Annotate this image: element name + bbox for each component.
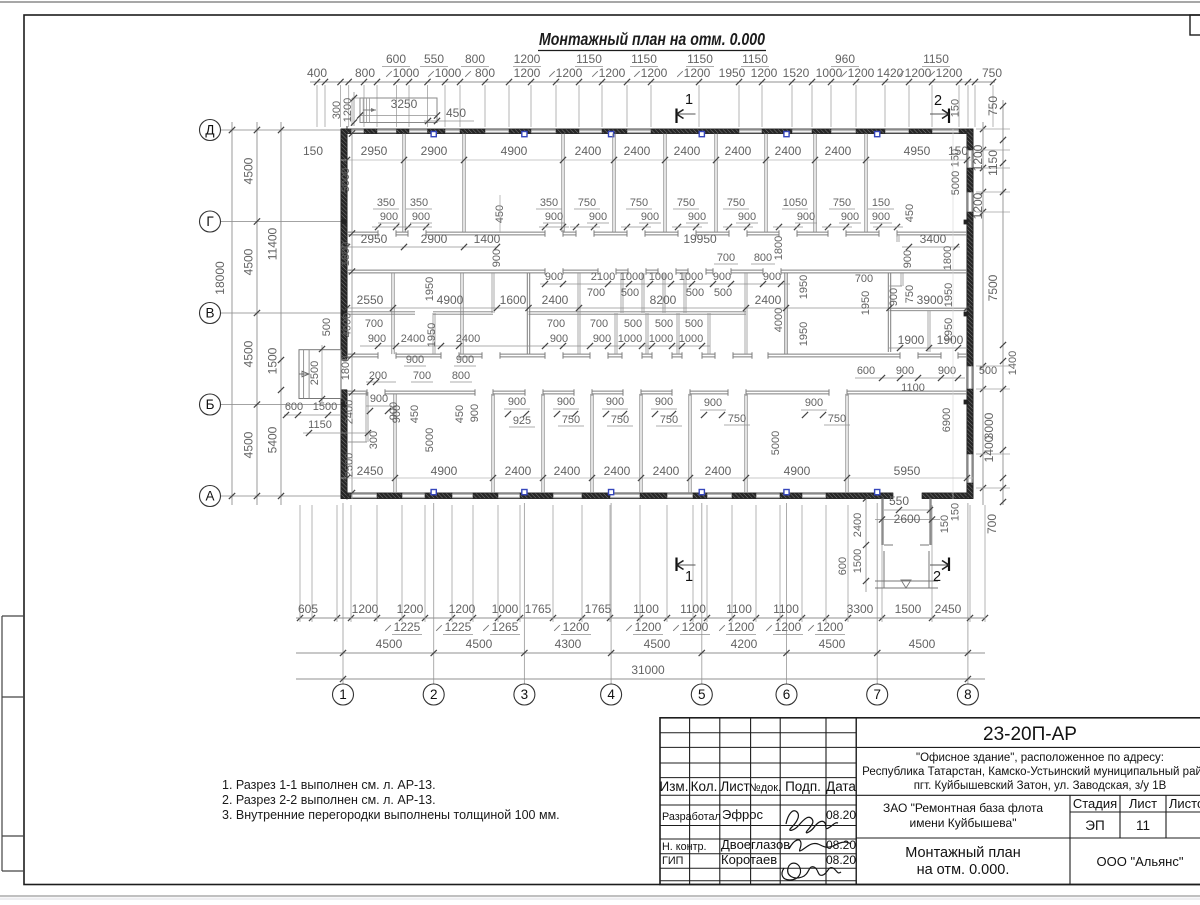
- svg-text:1000: 1000: [435, 66, 462, 80]
- svg-text:750: 750: [828, 413, 846, 425]
- svg-text:900: 900: [896, 365, 914, 377]
- svg-text:08.20: 08.20: [826, 853, 856, 867]
- svg-text:1150: 1150: [576, 52, 602, 66]
- svg-text:1: 1: [685, 569, 693, 585]
- svg-text:1200: 1200: [352, 602, 379, 616]
- svg-text:2900: 2900: [421, 144, 448, 158]
- svg-text:900: 900: [641, 211, 659, 223]
- svg-text:1000: 1000: [649, 333, 673, 345]
- svg-text:925: 925: [513, 415, 531, 427]
- svg-text:Стадия: Стадия: [1073, 796, 1117, 811]
- svg-text:1200: 1200: [449, 602, 476, 616]
- svg-text:Подп.: Подп.: [785, 779, 821, 794]
- svg-text:700: 700: [855, 273, 873, 285]
- svg-text:2950: 2950: [361, 232, 388, 246]
- svg-text:Разработал: Разработал: [662, 811, 721, 823]
- svg-text:350: 350: [540, 197, 558, 209]
- svg-text:1950: 1950: [424, 277, 436, 301]
- svg-text:2: 2: [934, 93, 942, 109]
- svg-text:900: 900: [469, 404, 481, 422]
- svg-text:4900: 4900: [784, 464, 811, 478]
- svg-text:Монтажный план на отм. 0.000: Монтажный план на отм. 0.000: [539, 29, 765, 49]
- svg-text:1200: 1200: [342, 98, 354, 122]
- svg-text:Н. контр.: Н. контр.: [662, 841, 707, 853]
- svg-text:Дата: Дата: [826, 779, 856, 794]
- svg-text:Д: Д: [205, 123, 214, 138]
- svg-text:150: 150: [939, 515, 951, 533]
- svg-text:800: 800: [355, 66, 375, 80]
- svg-text:700: 700: [587, 287, 605, 299]
- svg-text:2400: 2400: [575, 144, 602, 158]
- svg-text:2400: 2400: [775, 144, 802, 158]
- svg-text:2: 2: [933, 569, 941, 585]
- svg-text:750: 750: [727, 197, 745, 209]
- svg-text:ООО "Альянс": ООО "Альянс": [1097, 854, 1184, 869]
- svg-text:1000: 1000: [679, 271, 703, 283]
- svg-text:1200: 1200: [936, 66, 963, 80]
- svg-text:4900: 4900: [437, 293, 464, 307]
- svg-text:08.20: 08.20: [826, 808, 856, 822]
- svg-text:ГИП: ГИП: [662, 855, 683, 867]
- svg-text:900: 900: [557, 396, 575, 408]
- svg-text:4950: 4950: [904, 144, 931, 158]
- svg-text:500: 500: [686, 287, 704, 299]
- svg-text:900: 900: [797, 211, 815, 223]
- svg-text:1050: 1050: [783, 197, 807, 209]
- svg-text:3: 3: [521, 687, 529, 702]
- svg-text:ЗАО "Ремонтная база флота: ЗАО "Ремонтная база флота: [883, 801, 1043, 815]
- svg-text:1150: 1150: [631, 52, 657, 66]
- svg-text:5000: 5000: [950, 171, 962, 195]
- svg-text:800: 800: [475, 66, 495, 80]
- svg-text:4500: 4500: [644, 637, 671, 651]
- svg-text:500: 500: [714, 287, 732, 299]
- svg-text:Лист: Лист: [1129, 796, 1157, 811]
- svg-text:900: 900: [593, 333, 611, 345]
- svg-text:4500: 4500: [376, 637, 403, 651]
- svg-text:1200: 1200: [817, 620, 844, 634]
- svg-text:2: 2: [430, 687, 438, 702]
- svg-text:450: 450: [446, 106, 466, 120]
- svg-text:150: 150: [950, 99, 962, 117]
- svg-text:900: 900: [655, 396, 673, 408]
- svg-text:Листов: Листов: [1169, 796, 1200, 811]
- svg-text:2400: 2400: [653, 464, 680, 478]
- svg-text:5: 5: [698, 687, 706, 702]
- svg-text:1000: 1000: [816, 66, 843, 80]
- svg-text:900: 900: [370, 393, 388, 405]
- svg-text:4500: 4500: [242, 340, 256, 367]
- svg-text:3250: 3250: [391, 97, 418, 111]
- svg-text:4500: 4500: [819, 637, 846, 651]
- svg-text:500: 500: [685, 318, 703, 330]
- svg-text:1765: 1765: [585, 602, 612, 616]
- svg-text:2400: 2400: [725, 144, 752, 158]
- svg-text:900: 900: [688, 211, 706, 223]
- svg-text:500: 500: [621, 287, 639, 299]
- svg-text:1000: 1000: [492, 602, 519, 616]
- svg-text:1800: 1800: [942, 246, 954, 270]
- svg-text:900: 900: [738, 211, 756, 223]
- svg-text:150: 150: [948, 144, 968, 158]
- svg-text:2600: 2600: [894, 512, 921, 526]
- svg-text:1800: 1800: [340, 356, 352, 380]
- svg-text:1520: 1520: [783, 66, 810, 80]
- svg-text:3900: 3900: [917, 293, 944, 307]
- svg-text:Двоеглазов: Двоеглазов: [721, 837, 790, 852]
- svg-text:1900: 1900: [937, 333, 964, 347]
- svg-text:750: 750: [660, 414, 678, 426]
- svg-text:18000: 18000: [213, 261, 227, 295]
- svg-text:Лист: Лист: [720, 779, 749, 794]
- svg-text:600: 600: [386, 52, 406, 66]
- svg-text:1150: 1150: [986, 150, 1000, 176]
- svg-text:4: 4: [607, 687, 615, 702]
- svg-text:5000: 5000: [770, 431, 782, 455]
- svg-text:605: 605: [298, 602, 318, 616]
- svg-text:31000: 31000: [631, 663, 665, 677]
- svg-text:2450: 2450: [935, 602, 962, 616]
- svg-text:750: 750: [982, 66, 1002, 80]
- svg-text:550: 550: [424, 52, 444, 66]
- svg-text:пгт. Куйбышевский Затон, ул. З: пгт. Куйбышевский Затон, ул. Заводская, …: [914, 780, 1167, 792]
- svg-text:1. Разрез 1-1 выполнен см. л.: 1. Разрез 1-1 выполнен см. л. АР-13.: [222, 778, 436, 792]
- svg-text:750: 750: [728, 413, 746, 425]
- svg-text:Б: Б: [206, 397, 215, 412]
- svg-text:2400: 2400: [344, 400, 356, 424]
- svg-text:1000: 1000: [393, 66, 420, 80]
- svg-text:900: 900: [508, 396, 526, 408]
- svg-text:900: 900: [491, 249, 503, 267]
- svg-text:1225: 1225: [394, 620, 421, 634]
- svg-text:5400: 5400: [266, 426, 280, 453]
- svg-text:2400: 2400: [705, 464, 732, 478]
- svg-text:1950: 1950: [798, 322, 810, 346]
- svg-text:900: 900: [380, 211, 398, 223]
- svg-text:1: 1: [685, 92, 693, 108]
- svg-text:150: 150: [872, 197, 890, 209]
- svg-text:Кол.: Кол.: [691, 779, 718, 794]
- svg-text:5000: 5000: [340, 168, 352, 192]
- svg-text:7: 7: [873, 687, 881, 702]
- svg-text:В: В: [205, 306, 214, 321]
- svg-text:1400: 1400: [982, 435, 996, 462]
- svg-text:1200: 1200: [728, 620, 755, 634]
- svg-text:1200: 1200: [751, 66, 778, 80]
- svg-text:1: 1: [339, 687, 347, 702]
- svg-text:900: 900: [902, 250, 914, 268]
- svg-text:500: 500: [624, 318, 642, 330]
- svg-text:700: 700: [547, 318, 565, 330]
- svg-text:350: 350: [410, 197, 428, 209]
- svg-text:1265: 1265: [492, 620, 519, 634]
- svg-text:1500: 1500: [852, 549, 864, 573]
- svg-text:1150: 1150: [308, 419, 332, 431]
- svg-text:1600: 1600: [500, 293, 527, 307]
- svg-text:900: 900: [406, 354, 424, 366]
- svg-text:1950: 1950: [719, 66, 746, 80]
- svg-text:5000: 5000: [424, 428, 436, 452]
- svg-text:1400: 1400: [1007, 351, 1019, 375]
- svg-text:2400: 2400: [674, 144, 701, 158]
- svg-text:750: 750: [833, 197, 851, 209]
- svg-text:6900: 6900: [941, 408, 953, 432]
- svg-text:4000: 4000: [773, 308, 785, 332]
- svg-text:1950: 1950: [798, 275, 810, 299]
- svg-text:750: 750: [611, 414, 629, 426]
- svg-text:6: 6: [783, 687, 791, 702]
- svg-text:2450: 2450: [357, 464, 384, 478]
- svg-text:11400: 11400: [266, 227, 280, 260]
- svg-text:900: 900: [805, 397, 823, 409]
- svg-text:1800: 1800: [773, 236, 785, 260]
- svg-text:1200: 1200: [514, 52, 541, 66]
- svg-text:900: 900: [872, 211, 890, 223]
- svg-text:4500: 4500: [466, 637, 493, 651]
- svg-text:750: 750: [677, 197, 695, 209]
- svg-text:1150: 1150: [923, 52, 949, 66]
- svg-text:700: 700: [590, 318, 608, 330]
- svg-text:450: 450: [904, 204, 916, 222]
- svg-text:1500: 1500: [313, 401, 337, 413]
- svg-text:2400: 2400: [505, 464, 532, 478]
- svg-text:2400: 2400: [755, 293, 782, 307]
- svg-text:1200: 1200: [599, 66, 626, 80]
- svg-text:1100: 1100: [680, 602, 706, 616]
- svg-text:№док.: №док.: [749, 782, 781, 794]
- svg-text:450: 450: [454, 405, 466, 423]
- svg-text:1200: 1200: [848, 66, 875, 80]
- svg-text:1100: 1100: [901, 382, 925, 394]
- svg-text:1200: 1200: [556, 66, 583, 80]
- svg-text:1800: 1800: [340, 242, 352, 266]
- svg-text:Республика Татарстан, Камско-У: Республика Татарстан, Камско-Устьинский …: [862, 766, 1200, 778]
- svg-text:1000: 1000: [618, 333, 642, 345]
- svg-text:900: 900: [606, 396, 624, 408]
- svg-text:4900: 4900: [431, 464, 458, 478]
- svg-text:3000: 3000: [982, 412, 996, 439]
- svg-text:2500: 2500: [309, 361, 321, 385]
- svg-text:600: 600: [857, 365, 875, 377]
- svg-text:имени Куйбышева": имени Куйбышева": [910, 816, 1017, 830]
- svg-text:Изм.: Изм.: [660, 779, 689, 794]
- svg-text:700: 700: [413, 370, 431, 382]
- svg-text:1900: 1900: [898, 333, 925, 347]
- svg-text:2400: 2400: [825, 144, 852, 158]
- svg-text:19950: 19950: [683, 232, 717, 246]
- svg-text:1200: 1200: [514, 66, 541, 80]
- svg-text:5950: 5950: [894, 464, 921, 478]
- svg-text:4500: 4500: [242, 157, 256, 184]
- svg-text:1150: 1150: [687, 52, 713, 66]
- svg-text:750: 750: [986, 96, 1000, 116]
- svg-text:2400: 2400: [852, 513, 864, 537]
- svg-text:1200: 1200: [905, 66, 932, 80]
- svg-text:1150: 1150: [742, 52, 768, 66]
- svg-text:1225: 1225: [445, 620, 472, 634]
- svg-text:900: 900: [589, 211, 607, 223]
- svg-text:300: 300: [368, 431, 380, 449]
- svg-text:600: 600: [285, 401, 303, 413]
- svg-text:150: 150: [950, 503, 962, 521]
- svg-text:800: 800: [754, 252, 772, 264]
- svg-text:1765: 1765: [525, 602, 552, 616]
- svg-text:550: 550: [889, 494, 909, 508]
- svg-text:2550: 2550: [357, 293, 384, 307]
- svg-text:750: 750: [904, 285, 916, 303]
- svg-text:4300: 4300: [555, 637, 582, 651]
- svg-text:500: 500: [655, 318, 673, 330]
- svg-text:900: 900: [938, 365, 956, 377]
- svg-text:2400: 2400: [554, 464, 581, 478]
- svg-text:2400: 2400: [401, 333, 425, 345]
- svg-text:800: 800: [452, 370, 470, 382]
- svg-text:1950: 1950: [426, 323, 438, 347]
- svg-text:750: 750: [578, 197, 596, 209]
- svg-text:900: 900: [391, 405, 403, 423]
- svg-text:700: 700: [365, 318, 383, 330]
- svg-text:1200: 1200: [397, 602, 424, 616]
- svg-text:1500: 1500: [895, 602, 922, 616]
- svg-text:Г: Г: [206, 214, 214, 229]
- svg-text:700: 700: [985, 514, 999, 534]
- svg-text:4200: 4200: [731, 637, 758, 651]
- svg-text:1200: 1200: [684, 66, 711, 80]
- svg-text:900: 900: [545, 211, 563, 223]
- svg-text:2400: 2400: [542, 293, 569, 307]
- svg-text:2400: 2400: [624, 144, 651, 158]
- svg-text:8: 8: [964, 687, 972, 702]
- svg-text:1100: 1100: [773, 602, 799, 616]
- svg-text:А: А: [205, 489, 214, 504]
- svg-text:1200: 1200: [775, 620, 802, 634]
- svg-text:600: 600: [837, 557, 849, 575]
- svg-text:700: 700: [717, 252, 735, 264]
- svg-text:08.20: 08.20: [826, 838, 856, 852]
- svg-text:3. Внутренние перегородки выпо: 3. Внутренние перегородки выполнены толщ…: [222, 808, 560, 822]
- svg-text:1950: 1950: [860, 291, 872, 315]
- svg-text:4500: 4500: [909, 637, 936, 651]
- svg-text:3400: 3400: [920, 232, 947, 246]
- svg-text:750: 750: [562, 414, 580, 426]
- svg-text:400: 400: [307, 66, 327, 80]
- svg-text:900: 900: [841, 211, 859, 223]
- svg-text:500: 500: [979, 365, 997, 377]
- svg-text:4500: 4500: [242, 248, 256, 275]
- svg-text:Монтажный план: Монтажный план: [905, 845, 1021, 861]
- svg-text:2900: 2900: [421, 232, 448, 246]
- svg-text:1200: 1200: [563, 620, 590, 634]
- svg-text:900: 900: [456, 354, 474, 366]
- svg-text:4900: 4900: [501, 144, 528, 158]
- svg-text:150: 150: [303, 144, 323, 158]
- svg-text:750: 750: [630, 197, 648, 209]
- svg-text:Эфрос: Эфрос: [722, 807, 763, 822]
- svg-text:11: 11: [1136, 818, 1150, 833]
- svg-text:Коротаев: Коротаев: [721, 852, 777, 867]
- svg-text:ЭП: ЭП: [1085, 818, 1104, 833]
- svg-text:3300: 3300: [847, 602, 874, 616]
- svg-text:7500: 7500: [986, 274, 1000, 301]
- svg-text:500: 500: [321, 318, 333, 336]
- svg-text:1200: 1200: [682, 620, 709, 634]
- svg-text:1400: 1400: [474, 232, 501, 246]
- svg-text:4500: 4500: [242, 431, 256, 458]
- svg-text:350: 350: [377, 197, 395, 209]
- svg-text:450: 450: [409, 405, 421, 423]
- svg-text:1500: 1500: [266, 347, 280, 374]
- svg-text:1200: 1200: [641, 66, 668, 80]
- svg-text:2. Разрез 2-2 выполнен см. л.: 2. Разрез 2-2 выполнен см. л. АР-13.: [222, 793, 436, 807]
- svg-text:1200: 1200: [635, 620, 662, 634]
- svg-text:1420: 1420: [877, 66, 904, 80]
- svg-text:1100: 1100: [726, 602, 752, 616]
- svg-text:2400: 2400: [456, 333, 480, 345]
- svg-text:"Офисное здание", расположенно: "Офисное здание", расположенное по адрес…: [916, 752, 1164, 764]
- svg-text:на отм. 0.000.: на отм. 0.000.: [917, 862, 1010, 878]
- svg-text:960: 960: [835, 52, 855, 66]
- svg-text:1100: 1100: [633, 602, 659, 616]
- svg-text:900: 900: [704, 397, 722, 409]
- svg-text:2950: 2950: [361, 144, 388, 158]
- svg-text:8200: 8200: [650, 293, 677, 307]
- svg-text:1000: 1000: [679, 333, 703, 345]
- svg-text:2500: 2500: [344, 453, 356, 477]
- svg-text:800: 800: [465, 52, 485, 66]
- svg-text:2100: 2100: [591, 271, 615, 283]
- svg-text:900: 900: [368, 333, 386, 345]
- svg-text:2400: 2400: [604, 464, 631, 478]
- svg-text:900: 900: [888, 288, 900, 306]
- svg-text:900: 900: [412, 211, 430, 223]
- svg-text:23-20П-АР: 23-20П-АР: [983, 724, 1077, 745]
